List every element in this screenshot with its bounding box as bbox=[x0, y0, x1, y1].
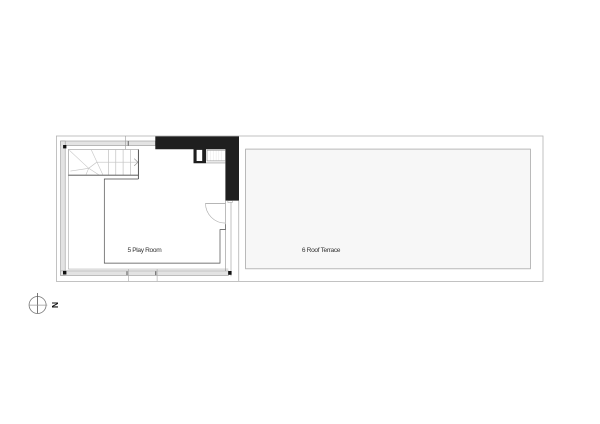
svg-text:5 Play Room: 5 Play Room bbox=[127, 247, 162, 254]
svg-text:N: N bbox=[50, 302, 60, 308]
svg-text:6 Roof Terrace: 6 Roof Terrace bbox=[302, 247, 341, 254]
